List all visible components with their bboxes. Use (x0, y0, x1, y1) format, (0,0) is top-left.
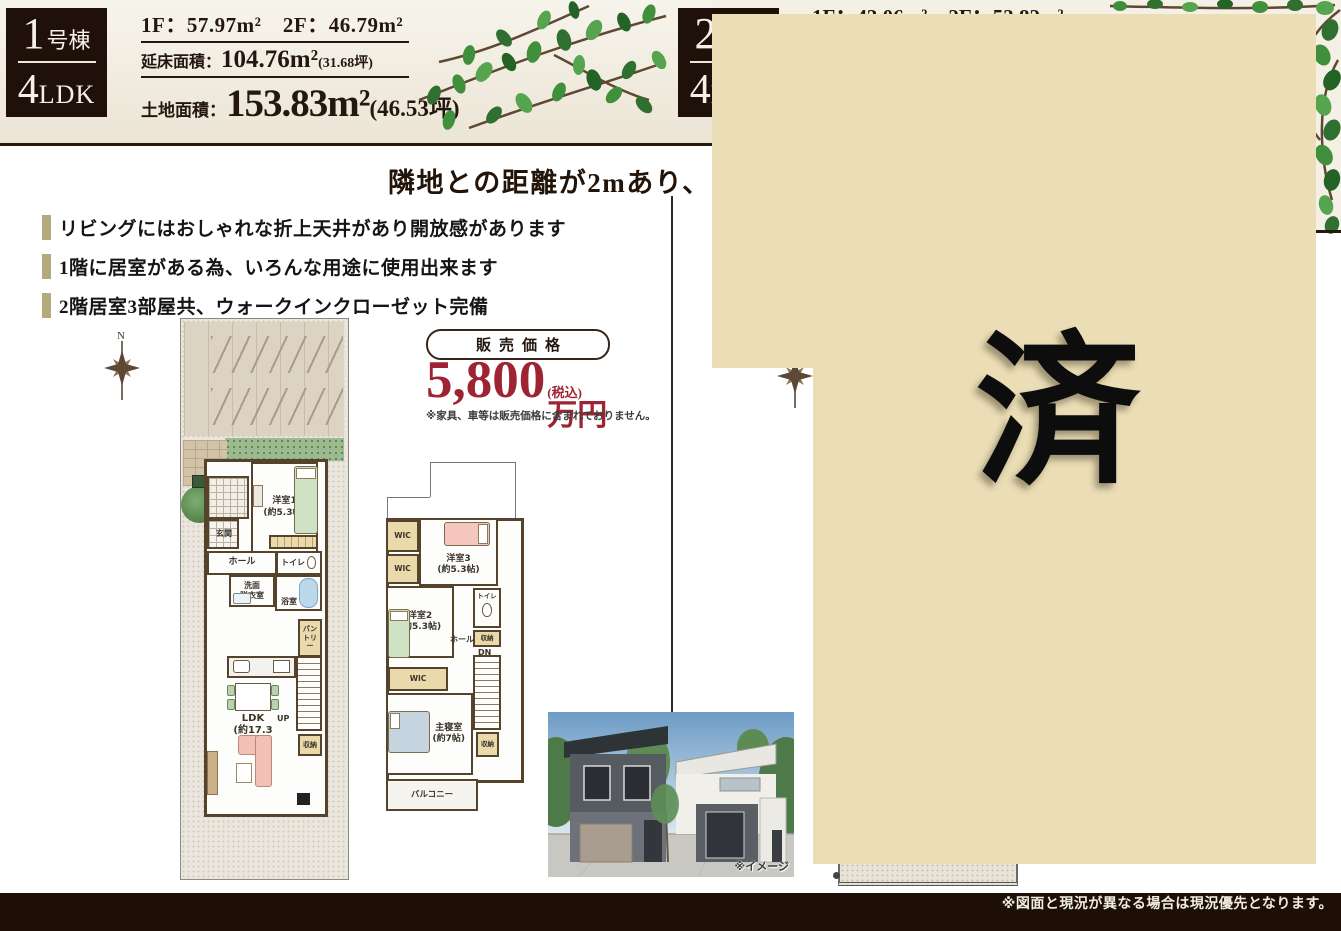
entrance-tile (207, 476, 249, 519)
label-genkan: 玄関 (209, 529, 239, 539)
roof-outline (387, 497, 388, 518)
photo-caption: ※イメージ (735, 858, 789, 874)
dining-table-icon (235, 683, 271, 711)
parking-hatch (211, 388, 343, 425)
room-storage-2f: 収納 (476, 732, 499, 757)
land-area-label: 土地面積： (141, 101, 226, 120)
price-disclaimer: ※家具、車等は販売価格に含まれておりません。 (426, 408, 656, 423)
room-pantry: パン トリー (298, 619, 322, 657)
toilet-icon (307, 556, 316, 569)
stairs-up (296, 656, 322, 731)
tv-icon (297, 793, 310, 805)
compass-icon: N (99, 328, 145, 406)
feature-text: 1階に居室がある為、いろんな用途に使用出来ます (59, 253, 498, 280)
building1-area-info: 1F：57.97m² 2F：46.79m² 延床面積：104.76m²(31.6… (141, 9, 460, 126)
total-area-label: 延床面積： (141, 54, 221, 71)
shoe-closet (269, 535, 318, 549)
flyer-page: 1 号棟 4 LDK 1F：57.97m² 2F：46.79m² 延床面積：10… (0, 0, 1341, 931)
room-balcony: バルコニー (386, 779, 478, 811)
floor-areas: 1F：57.97m² 2F：46.79m² (141, 9, 460, 39)
room-hall: ホール (207, 551, 277, 575)
compass-north-label: N (117, 330, 125, 342)
feature-item: リビングにはおしゃれな折上天井があり開放感があります (42, 214, 566, 241)
desk-icon (253, 485, 263, 507)
stairs-down (473, 655, 501, 730)
badge-divider (18, 61, 96, 63)
feature-text: リビングにはおしゃれな折上天井があり開放感があります (59, 214, 566, 241)
land-area-value: 153.83m² (226, 82, 369, 125)
leaves (424, 0, 669, 131)
parking-hatch (211, 336, 343, 373)
building1-badge: 1 号棟 4 LDK (6, 8, 107, 117)
sink-icon (233, 660, 250, 673)
planting-strip (225, 438, 344, 461)
pillow-icon (390, 611, 408, 621)
toilet-icon (482, 603, 492, 617)
land-area: 土地面積：153.83m²(46.53坪) (141, 81, 460, 126)
panel-divider (671, 196, 673, 772)
feature-list: リビングにはおしゃれな折上天井があり開放感があります 1階に居室がある為、いろん… (42, 214, 566, 331)
bathtub-icon (299, 578, 318, 608)
total-area-value: 104.76m² (221, 46, 318, 73)
price-value: 5,800 (426, 351, 545, 409)
total-area-tsubo: (31.68坪) (318, 56, 373, 71)
building1-number-suffix: 号棟 (46, 23, 90, 55)
sofa-icon (255, 735, 272, 787)
building1-plan: 4 LDK (6, 65, 107, 117)
chair-icon (271, 685, 279, 696)
stove-icon (273, 660, 290, 673)
label-hall-2f: ホール (450, 635, 474, 645)
building2-plan-number: 4 (690, 65, 711, 115)
tv-board-icon (207, 751, 218, 795)
building1-name: 1 号棟 (6, 8, 107, 60)
room-storage-1f: 収納 (298, 734, 322, 756)
pillow-icon (478, 524, 488, 544)
footer-disclaimer: ※図面と現況が異なる場合は現況優先となります。 (1002, 893, 1333, 913)
feature-item: 1階に居室がある為、いろんな用途に使用出来ます (42, 253, 566, 280)
chair-icon (227, 699, 235, 710)
building1-plan-number: 4 (18, 65, 39, 115)
roof-outline (430, 462, 431, 497)
bullet-bar-icon (42, 215, 51, 240)
feature-item: 2階居室3部屋共、ウォークインクローゼット完備 (42, 292, 566, 319)
building2-siteplan-corner (833, 872, 840, 879)
floorplan-2f: WIC WIC 洋室3 (約5.3帖) 洋室2 (約5.3帖) トイレ 収納 ホ… (378, 445, 540, 825)
chair-icon (271, 699, 279, 710)
building1-plan-suffix: LDK (39, 80, 95, 110)
pillow-icon (296, 468, 316, 479)
sold-stamp: 済 (963, 330, 1153, 495)
ottoman-icon (236, 763, 252, 783)
washbasin-icon (233, 593, 251, 604)
footer-bar: ※図面と現況が異なる場合は現況優先となります。 (0, 893, 1341, 931)
rule-line (141, 41, 409, 43)
room-wic-a: WIC (386, 520, 419, 552)
building1-number: 1 (22, 8, 44, 60)
room-wic-b: WIC (386, 554, 419, 584)
bullet-bar-icon (42, 293, 51, 318)
label-up: UP (277, 714, 289, 724)
total-floor-area: 延床面積：104.76m²(31.68坪) (141, 46, 460, 74)
chair-icon (227, 685, 235, 696)
exterior-render (548, 712, 794, 877)
room-wic-c: WIC (388, 667, 448, 691)
pillow-icon (390, 713, 400, 729)
roof-outline (387, 497, 430, 498)
rule-line (141, 76, 409, 78)
room-storage-small: 収納 (473, 630, 501, 647)
feature-text: 2階居室3部屋共、ウォークインクローゼット完備 (59, 292, 489, 319)
exterior-photo: ※イメージ (548, 712, 794, 877)
roof-outline (515, 462, 516, 518)
roof-outline (430, 462, 515, 463)
foliage-decoration-left (414, 0, 670, 143)
bullet-bar-icon (42, 254, 51, 279)
floorplan-1f: 洋室1 (約5.3帖) 玄関 ホール トイレ 洗面 脱衣室 浴室 パン トリー … (180, 318, 349, 880)
